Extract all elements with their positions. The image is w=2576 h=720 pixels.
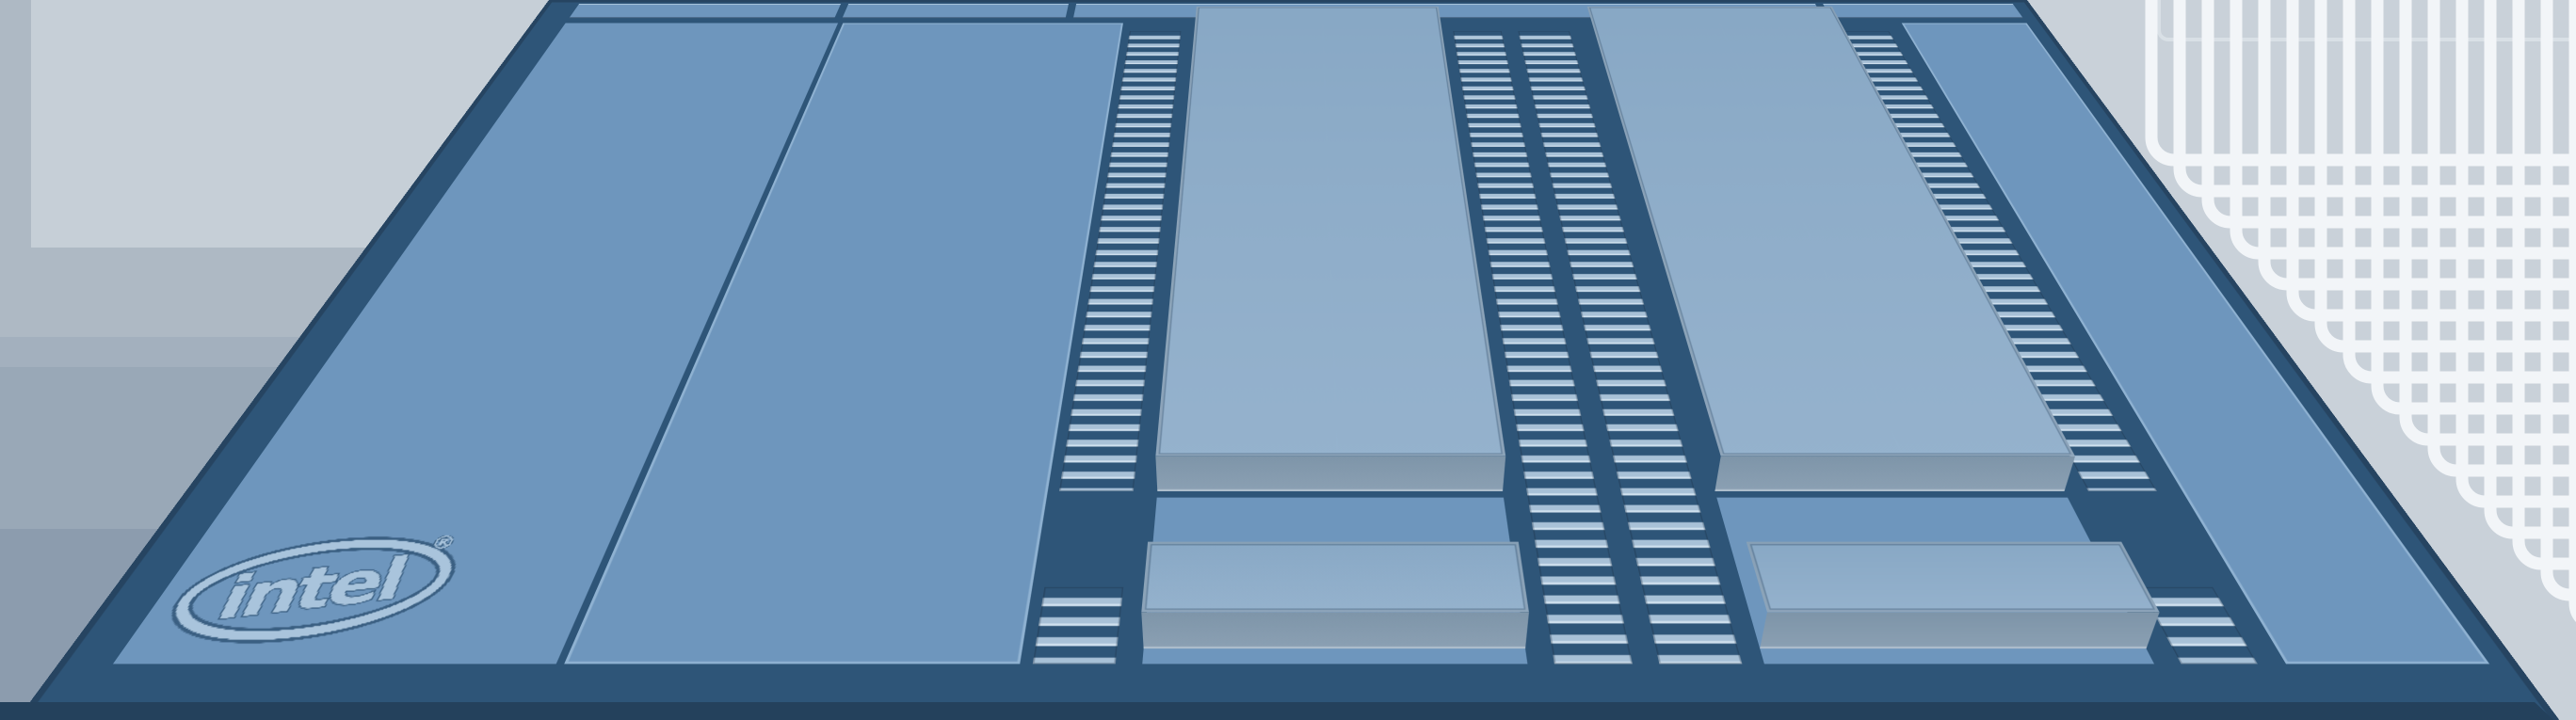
chiplet-top-face xyxy=(1155,7,1505,456)
chiplet-front-face xyxy=(1760,613,2160,649)
bridge-column-4-lower xyxy=(2140,587,2258,664)
chiplet-front-face xyxy=(1715,456,2075,491)
intel-logo-text: intel xyxy=(205,546,413,635)
chiplet-front-face xyxy=(1141,613,1529,649)
package-front-edge xyxy=(0,702,2553,720)
chiplet-top-face xyxy=(1747,542,2160,613)
top-edge-tile xyxy=(1823,4,2023,18)
chiplet-top-left xyxy=(1157,35,1503,491)
chip-stage: intel ® xyxy=(549,0,2027,720)
chiplet-bottom-left xyxy=(1144,578,1526,648)
chiplet-bottom-right xyxy=(1740,578,2147,648)
top-edge-tile xyxy=(569,4,841,18)
chiplet-front-face xyxy=(1155,456,1505,491)
top-edge-tile xyxy=(843,4,1070,18)
registered-mark: ® xyxy=(427,535,459,554)
intel-chip-illustration: intel ® xyxy=(0,0,2576,720)
chiplet-top-face xyxy=(1141,542,1529,613)
bridge-column-1-lower xyxy=(1033,587,1124,664)
